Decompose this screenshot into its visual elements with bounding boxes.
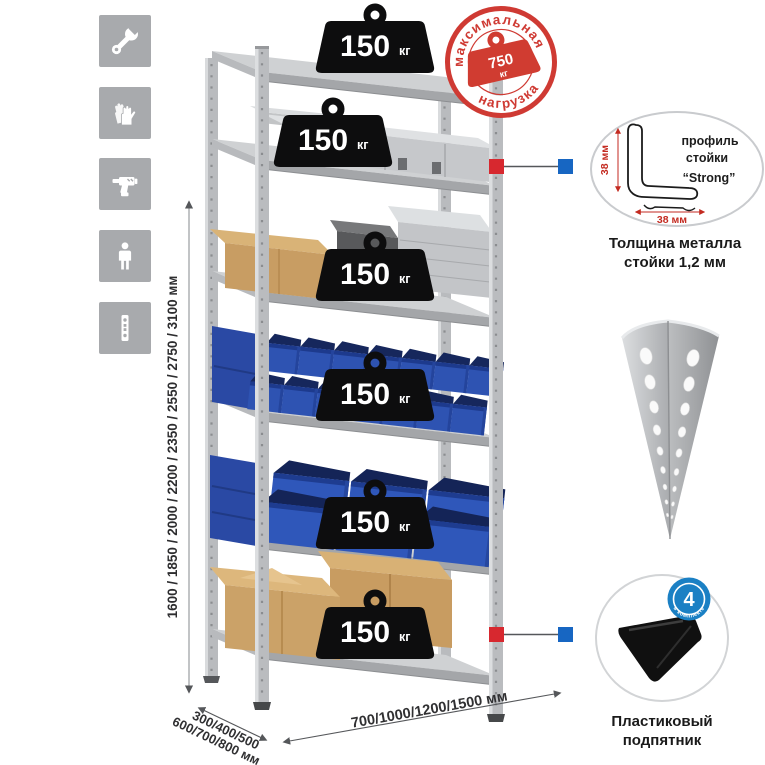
weight-unit: кг xyxy=(399,520,410,534)
kit-badge: 4 в комплекте xyxy=(668,578,711,621)
depth-dimension: 300/400/500 600/700/800 мм xyxy=(170,701,268,765)
plastic-foot-detail: 4 в комплекте xyxy=(595,574,729,702)
height-dimension: 1600 / 1850 / 2000 / 2200 / 2350 / 2550 … xyxy=(165,202,189,692)
weight-unit: кг xyxy=(399,392,410,406)
profile-dim-bottom: 38 мм xyxy=(657,214,687,225)
weight-value: 150 xyxy=(340,30,390,63)
profile-label-line1: профиль xyxy=(681,134,738,148)
foot-caption-line1: Пластиковый xyxy=(578,712,746,731)
connector-red-square xyxy=(489,159,504,174)
upright-post-art xyxy=(600,308,740,548)
weight-unit: кг xyxy=(399,44,410,58)
profile-label-line3: “Strong” xyxy=(683,171,736,185)
width-dimension-label: 700/1000/1200/1500 мм xyxy=(350,688,509,731)
callout-connector-bottom xyxy=(489,627,573,642)
weight-value: 150 xyxy=(340,616,390,649)
connector-blue-square xyxy=(558,627,573,642)
max-load-stamp: максимальная нагрузка 750 кг xyxy=(437,0,565,126)
height-dimension-label: 1600 / 1850 / 2000 / 2200 / 2350 / 2550 … xyxy=(165,276,180,619)
connector-red-square xyxy=(489,627,504,642)
foot-caption-line2: подпятник xyxy=(578,731,746,750)
weight-value: 150 xyxy=(340,506,390,539)
profile-caption: Толщина металла стойки 1,2 мм xyxy=(586,234,764,272)
weight-value: 150 xyxy=(298,124,348,157)
profile-caption-line1: Толщина металла xyxy=(586,234,764,253)
kit-badge-value: 4 xyxy=(683,589,695,611)
weight-unit: кг xyxy=(399,272,410,286)
width-dimension: 700/1000/1200/1500 мм xyxy=(284,688,560,742)
profile-caption-line2: стойки 1,2 мм xyxy=(586,253,764,272)
strong-profile-detail: 38 мм 38 мм профиль стойки “Strong” xyxy=(590,111,764,227)
weight-unit: кг xyxy=(357,138,368,152)
connector-blue-square xyxy=(558,159,573,174)
shelving-rack-infographic: 1600 / 1850 / 2000 / 2200 / 2350 / 2550 … xyxy=(0,0,765,765)
shelf-weight-1: 150 кг xyxy=(316,7,434,73)
callout-connector-top xyxy=(489,159,573,174)
weight-value: 150 xyxy=(340,378,390,411)
foot-caption: Пластиковый подпятник xyxy=(578,712,746,750)
profile-dim-side: 38 мм xyxy=(599,145,611,175)
weight-value: 150 xyxy=(340,258,390,291)
weight-unit: кг xyxy=(399,630,410,644)
plastic-foot-drawing: 4 в комплекте xyxy=(597,576,727,700)
strong-profile-drawing: 38 мм 38 мм профиль стойки “Strong” xyxy=(592,113,762,225)
profile-label-line2: стойки xyxy=(686,151,728,165)
